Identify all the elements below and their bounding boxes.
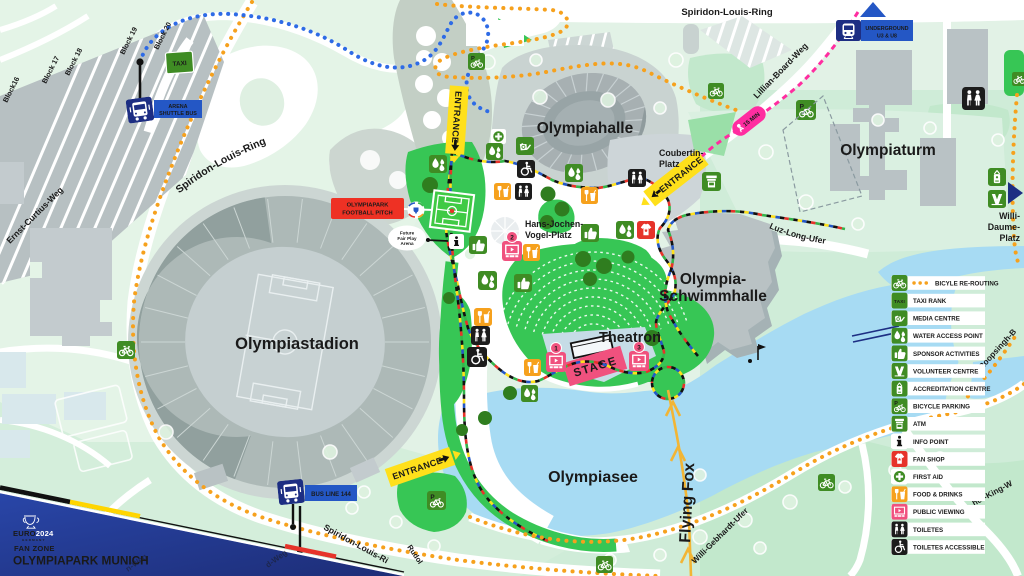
svg-text:FOOTBALL PITCH: FOOTBALL PITCH bbox=[342, 211, 392, 217]
svg-text:FIRST AID: FIRST AID bbox=[913, 474, 944, 481]
svg-text:TOILETES ACCESSIBLE: TOILETES ACCESSIBLE bbox=[913, 544, 985, 551]
svg-text:FAN SHOP: FAN SHOP bbox=[913, 456, 945, 463]
svg-text:Olympiahalle: Olympiahalle bbox=[537, 120, 634, 137]
svg-text:PUBLIC VIEWING: PUBLIC VIEWING bbox=[913, 509, 965, 516]
svg-text:WATER ACCESS POINT: WATER ACCESS POINT bbox=[913, 333, 983, 340]
svg-text:SHUTTLE BUS: SHUTTLE BUS bbox=[159, 111, 197, 117]
svg-text:Olympiasee: Olympiasee bbox=[548, 469, 638, 486]
svg-text:UNDERGROUND: UNDERGROUND bbox=[865, 26, 908, 32]
svg-text:Hans-Jochen-: Hans-Jochen- bbox=[525, 219, 583, 229]
svg-text:1: 1 bbox=[554, 346, 558, 353]
svg-text:Olympiastadion: Olympiastadion bbox=[235, 335, 359, 353]
svg-text:Olympiaturm: Olympiaturm bbox=[840, 142, 936, 159]
svg-text:Theatron: Theatron bbox=[599, 330, 661, 346]
svg-text:TAXI: TAXI bbox=[172, 60, 187, 68]
svg-text:TOILETES: TOILETES bbox=[913, 527, 943, 534]
svg-text:Vogel-Platz: Vogel-Platz bbox=[525, 230, 572, 240]
svg-text:Spiridon-Louis-Ring: Spiridon-Louis-Ring bbox=[681, 7, 772, 18]
svg-text:Daume-: Daume- bbox=[988, 222, 1020, 232]
svg-text:Willi-: Willi- bbox=[999, 211, 1020, 221]
svg-text:U3 & U8: U3 & U8 bbox=[877, 34, 897, 40]
svg-text:SPONSOR ACTIVITIES: SPONSOR ACTIVITIES bbox=[913, 351, 979, 358]
svg-text:BUS LINE 144: BUS LINE 144 bbox=[311, 492, 351, 498]
svg-text:Arena: Arena bbox=[400, 241, 413, 246]
svg-text:ATM: ATM bbox=[913, 421, 926, 428]
svg-text:FAN ZONE: FAN ZONE bbox=[14, 544, 55, 553]
svg-text:Schwimmhalle: Schwimmhalle bbox=[659, 288, 767, 305]
svg-text:OLYMPIAPARK MUNICH: OLYMPIAPARK MUNICH bbox=[13, 554, 149, 568]
svg-text:ARENA: ARENA bbox=[168, 104, 187, 110]
svg-text:Coubertin-: Coubertin- bbox=[659, 148, 704, 158]
svg-text:FOOD & DRINKS: FOOD & DRINKS bbox=[913, 492, 963, 499]
svg-text:Platz: Platz bbox=[659, 159, 680, 169]
svg-text:Platz: Platz bbox=[999, 233, 1020, 243]
svg-text:MEDIA CENTRE: MEDIA CENTRE bbox=[913, 316, 960, 323]
svg-text:VOLUNTEER CENTRE: VOLUNTEER CENTRE bbox=[913, 368, 978, 375]
svg-text:BICYCLE PARKING: BICYCLE PARKING bbox=[913, 404, 970, 411]
svg-text:GERMANY: GERMANY bbox=[22, 538, 46, 542]
svg-text:ACCREDITATION CENTRE: ACCREDITATION CENTRE bbox=[913, 386, 990, 393]
svg-text:TAXI RANK: TAXI RANK bbox=[913, 298, 947, 305]
svg-text:EURO2024: EURO2024 bbox=[13, 529, 54, 538]
svg-text:Olympia-: Olympia- bbox=[680, 271, 746, 288]
svg-text:Future: Future bbox=[400, 231, 415, 236]
svg-text:2: 2 bbox=[510, 235, 514, 242]
svg-text:OLYMPIAPARK: OLYMPIAPARK bbox=[347, 203, 390, 209]
svg-text:INFO POINT: INFO POINT bbox=[913, 439, 949, 446]
svg-text:BICYLE RE-ROUTING: BICYLE RE-ROUTING bbox=[935, 280, 999, 287]
